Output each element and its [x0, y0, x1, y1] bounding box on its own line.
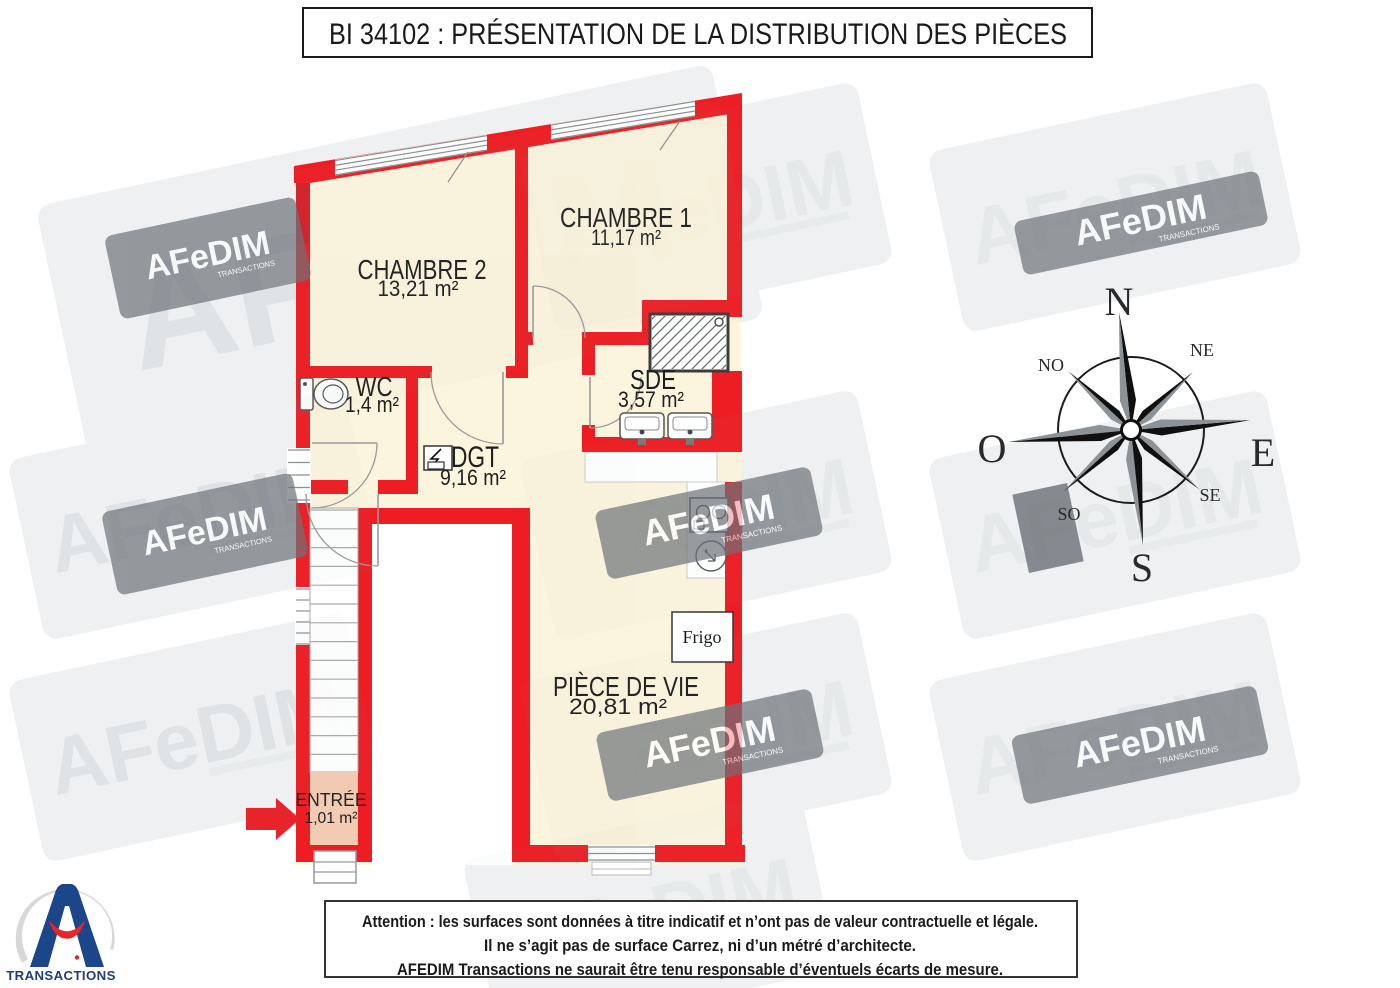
svg-text:9,16 m²: 9,16 m² — [440, 465, 506, 490]
svg-text:S: S — [1131, 545, 1153, 590]
svg-text:3,57 m²: 3,57 m² — [618, 387, 684, 412]
svg-text:Attention : les surfaces sont: Attention : les surfaces sont données à … — [362, 912, 1038, 931]
svg-text:NE: NE — [1190, 340, 1214, 360]
svg-text:AFEDIM Transactions ne saurait: AFEDIM Transactions ne saurait être tenu… — [397, 960, 1003, 979]
svg-text:1,01 m²: 1,01 m² — [305, 810, 359, 827]
svg-text:E: E — [1251, 430, 1275, 475]
svg-text:NO: NO — [1038, 355, 1064, 375]
svg-text:N: N — [1105, 279, 1134, 324]
svg-text:TRANSACTIONS: TRANSACTIONS — [6, 968, 116, 983]
svg-text:SO: SO — [1057, 504, 1080, 524]
svg-text:SE: SE — [1199, 485, 1220, 505]
svg-text:BI 34102 : PRÉSENTATION DE LA: BI 34102 : PRÉSENTATION DE LA DISTRIBUTI… — [329, 18, 1067, 51]
svg-text:Il ne s’agit pas de surface Ca: Il ne s’agit pas de surface Carrez, ni d… — [484, 936, 916, 955]
svg-text:O: O — [978, 426, 1007, 471]
